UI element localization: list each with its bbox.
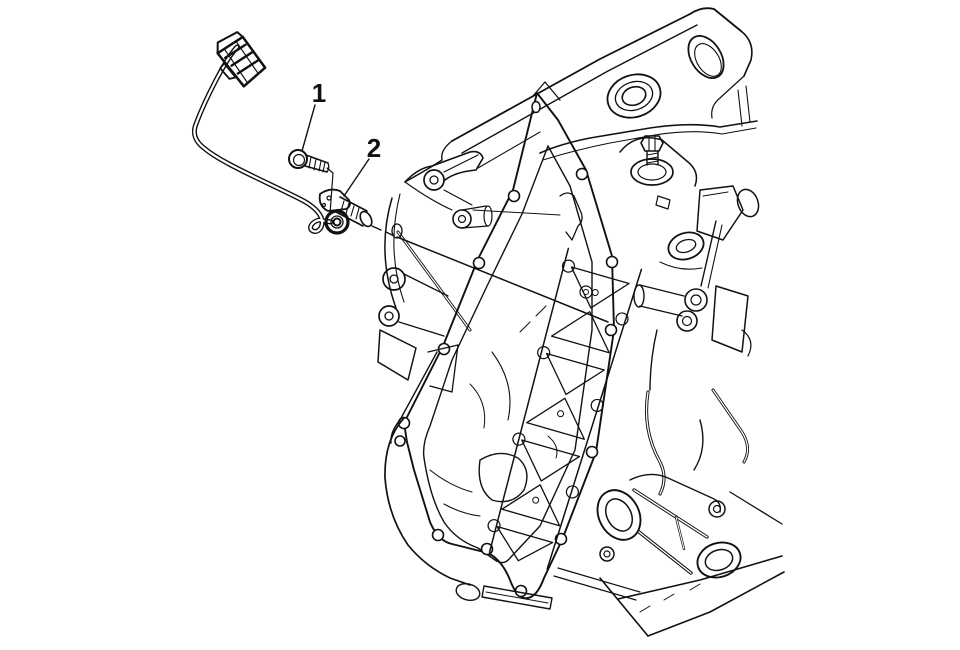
case-bottom-feet <box>454 568 640 609</box>
callout-1 <box>302 105 315 151</box>
case-stud-boss <box>620 136 743 240</box>
sensor-drawing <box>320 190 375 233</box>
bottom-right-bracket <box>589 474 784 636</box>
callout-2-label: 2 <box>367 133 381 163</box>
callout-1-leader <box>302 105 315 151</box>
valve-body <box>481 248 643 571</box>
callout-2 <box>344 159 369 196</box>
harness-wire <box>194 47 331 231</box>
figure-canvas: 1 2 <box>0 0 960 650</box>
case-flange-edge <box>385 345 470 585</box>
callout-1-label: 1 <box>312 78 326 108</box>
callout-2-leader <box>344 159 369 196</box>
technical-illustration: 1 2 <box>0 0 960 650</box>
sensor-alignment-leader <box>372 226 608 322</box>
transmission-case-drawing <box>378 8 784 636</box>
case-right-details <box>634 186 762 494</box>
